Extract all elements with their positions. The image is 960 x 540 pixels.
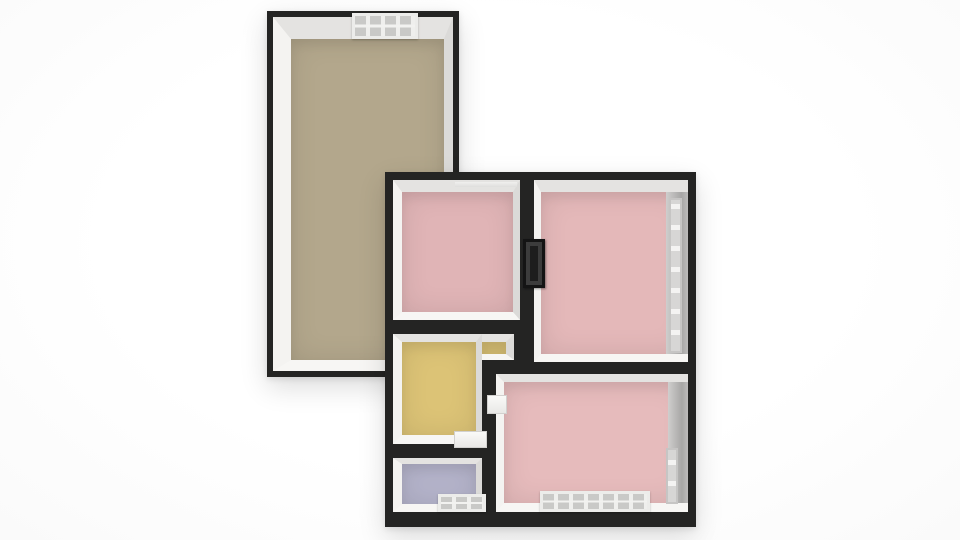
door-opening-bottom-pink-left bbox=[487, 395, 507, 414]
room-yellow-extension bbox=[482, 334, 514, 360]
door-threshold-yellow-room bbox=[454, 431, 487, 448]
window-lintel-pink-top-left bbox=[455, 182, 517, 187]
room-pink-top-right bbox=[534, 180, 688, 362]
window-lavender-bottom-wall bbox=[438, 494, 486, 512]
room-pink-top-left bbox=[393, 180, 520, 320]
window-small-right-wall-bottom bbox=[666, 448, 678, 504]
room-yellow bbox=[393, 334, 482, 444]
skylight-window-top-wall bbox=[352, 13, 418, 39]
floorplan-stage bbox=[0, 0, 960, 540]
room-yellow-floor bbox=[402, 342, 476, 435]
room-yellow-extension-floor bbox=[482, 342, 506, 354]
window-vent-bottom-pink-floor bbox=[540, 491, 650, 512]
window-tall-right-wall bbox=[669, 198, 682, 353]
door-dark-panel-between-pinks bbox=[523, 239, 545, 288]
room-pink-top-left-floor bbox=[402, 192, 513, 312]
room-pink-bottom-floor bbox=[504, 382, 688, 503]
